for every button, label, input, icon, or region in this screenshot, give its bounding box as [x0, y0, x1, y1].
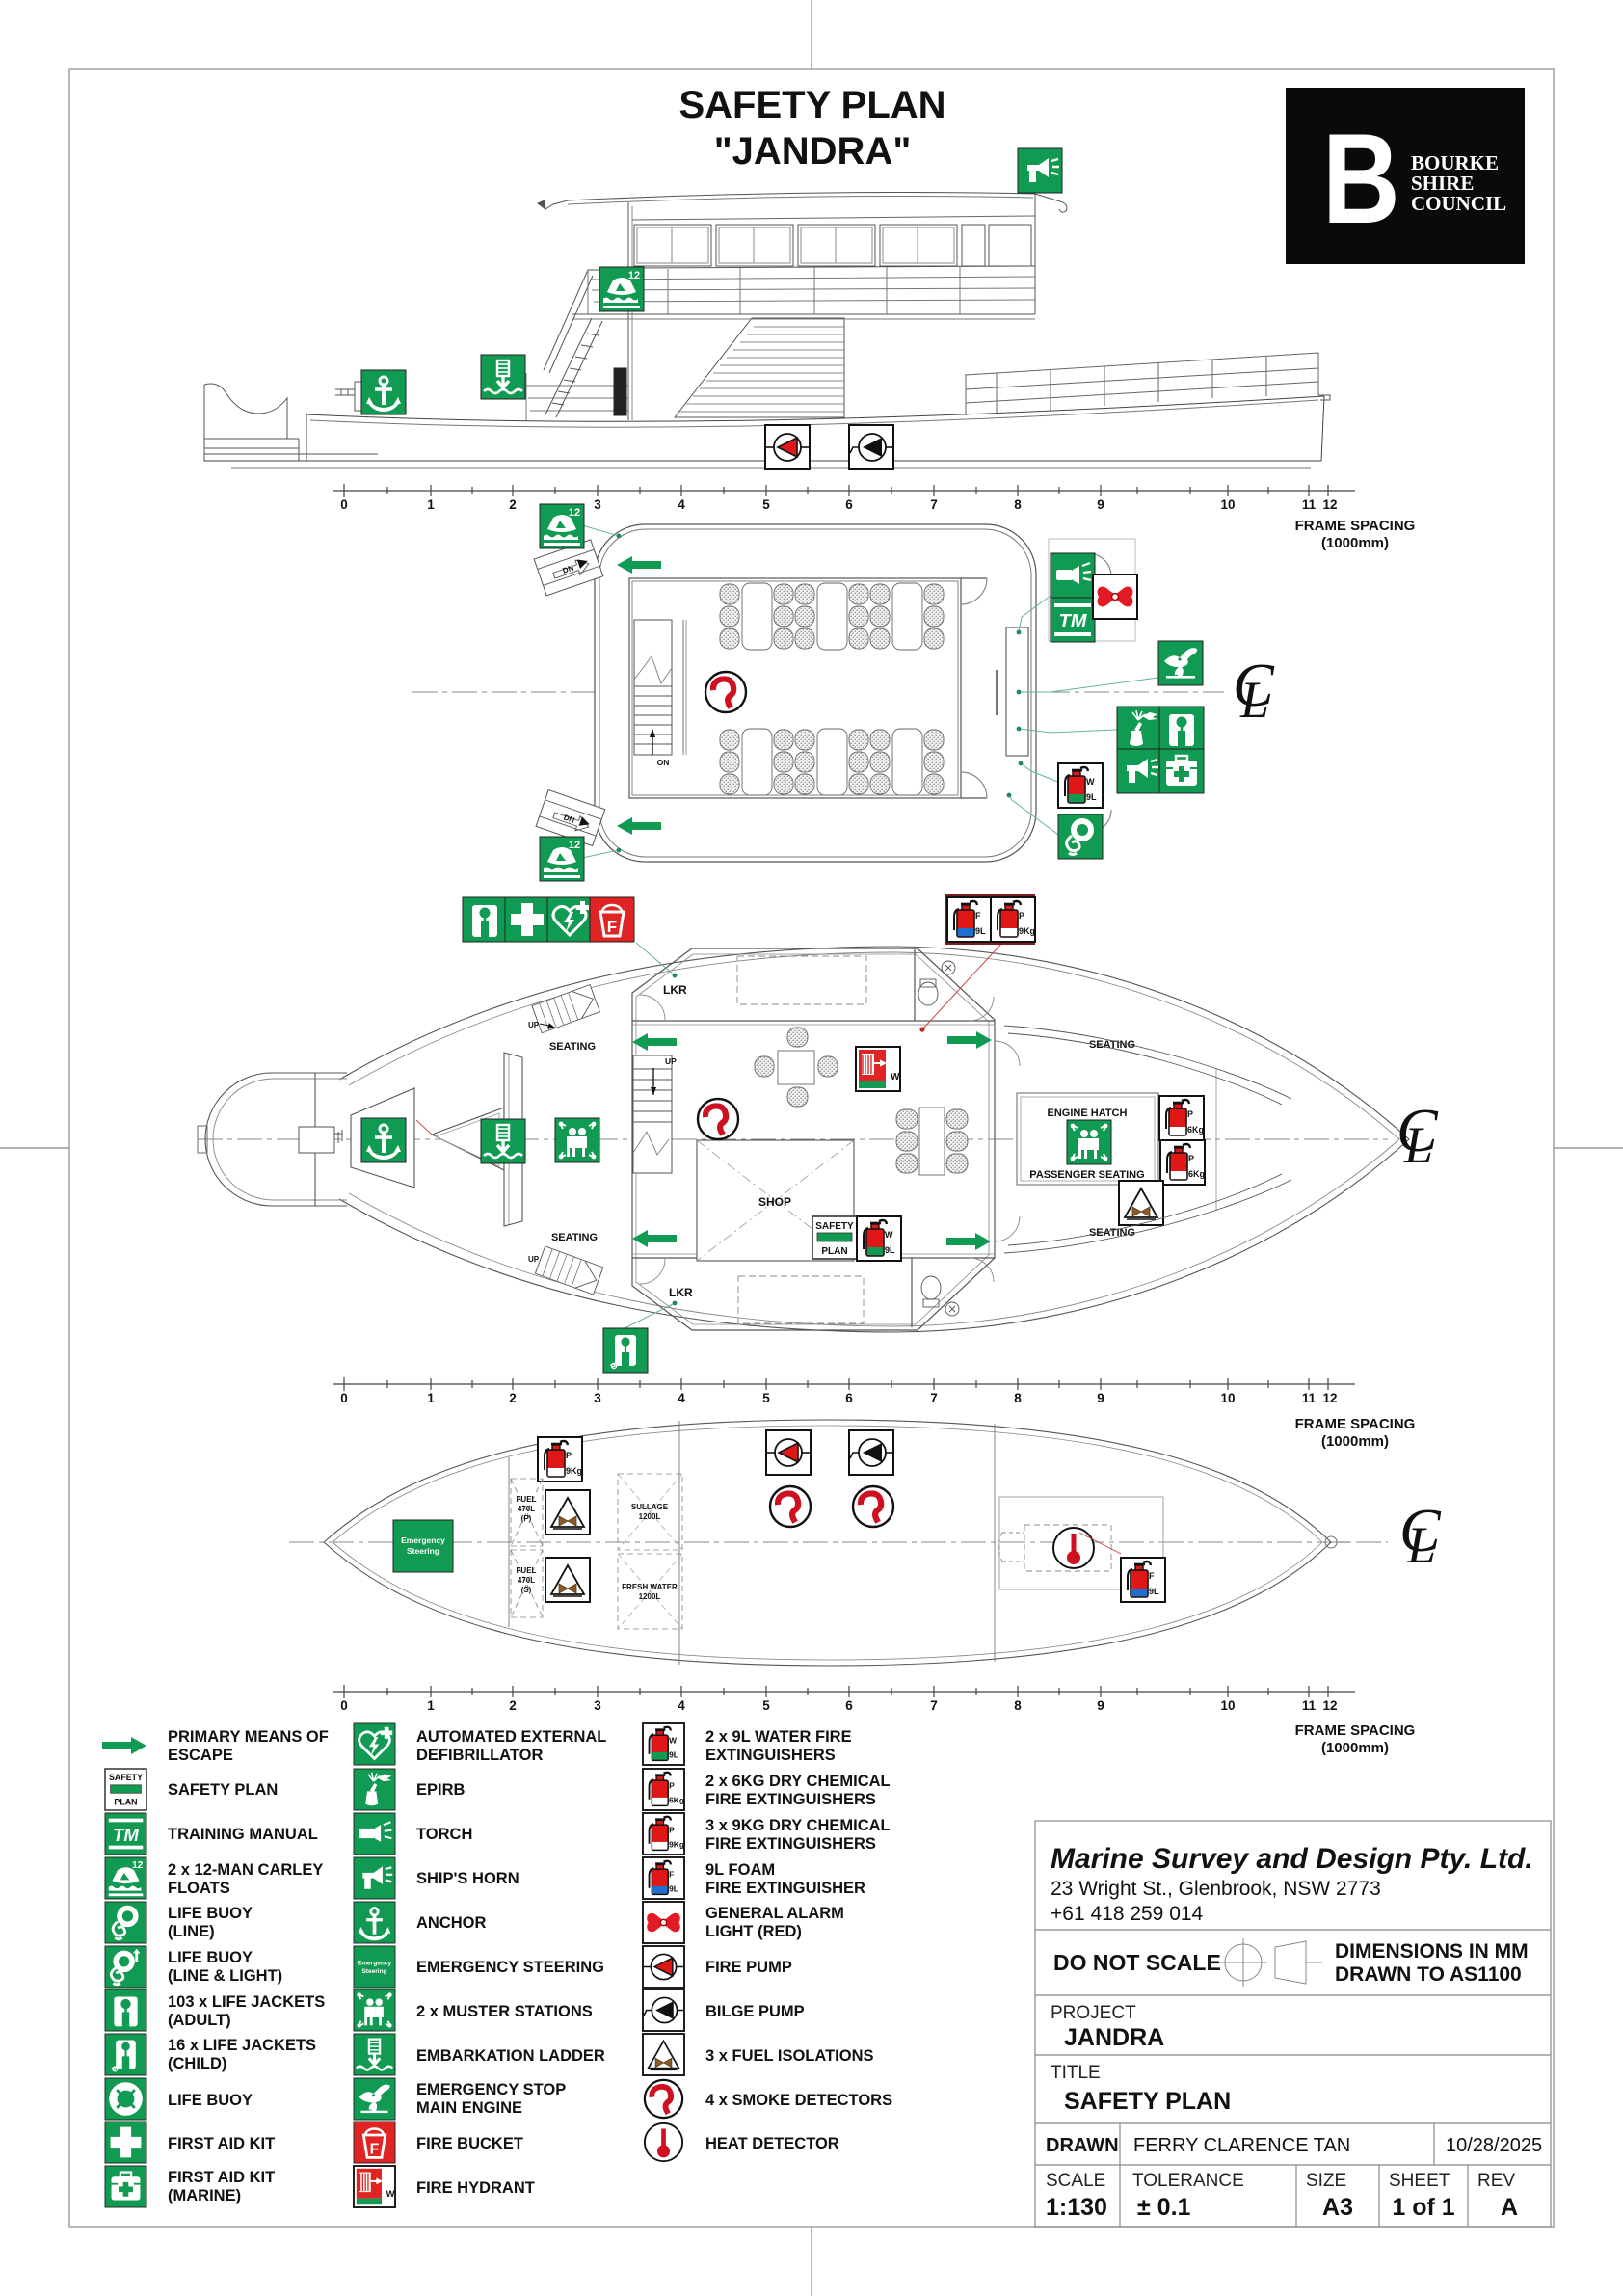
svg-text:FRAME SPACING: FRAME SPACING: [1295, 1722, 1416, 1739]
svg-text:PLAN: PLAN: [821, 1246, 847, 1257]
svg-text:0: 0: [340, 1391, 348, 1405]
svg-text:103 x LIFE JACKETS: 103 x LIFE JACKETS: [168, 1993, 325, 2011]
svg-text:2 x 9L WATER FIRE: 2 x 9L WATER FIRE: [705, 1728, 852, 1746]
svg-text:3: 3: [594, 497, 601, 512]
svg-text:FIRE EXTINGUISHER: FIRE EXTINGUISHER: [705, 1880, 865, 1897]
svg-text:Emergency: Emergency: [401, 1535, 445, 1545]
svg-text:FRESH WATER: FRESH WATER: [622, 1583, 678, 1591]
svg-text:ANCHOR: ANCHOR: [416, 1914, 486, 1932]
svg-text:FIRE EXTINGUISHERS: FIRE EXTINGUISHERS: [705, 1791, 876, 1808]
svg-text:10: 10: [1220, 1391, 1235, 1405]
svg-text:SAFETY: SAFETY: [815, 1221, 854, 1232]
svg-text:23 Wright St., Glenbrook, NSW: 23 Wright St., Glenbrook, NSW 2773: [1051, 1878, 1381, 1900]
svg-text:FIRST AID KIT: FIRST AID KIT: [168, 2169, 275, 2186]
svg-text:1: 1: [427, 1698, 435, 1713]
svg-text:9L FOAM: 9L FOAM: [705, 1861, 775, 1879]
svg-text:6: 6: [845, 497, 853, 512]
svg-text:L: L: [1239, 671, 1269, 729]
svg-text:3 x FUEL ISOLATIONS: 3 x FUEL ISOLATIONS: [705, 2047, 874, 2065]
svg-text:2: 2: [509, 1698, 517, 1713]
svg-text:SEATING: SEATING: [551, 1232, 598, 1243]
svg-text:(CHILD): (CHILD): [168, 2055, 226, 2072]
svg-text:(P): (P): [521, 1514, 532, 1523]
svg-text:FRAME SPACING: FRAME SPACING: [1295, 1416, 1416, 1432]
svg-text:ON: ON: [657, 758, 670, 767]
svg-text:FIRE PUMP: FIRE PUMP: [705, 1959, 792, 1976]
svg-text:9: 9: [1097, 1698, 1104, 1713]
svg-text:SIZE: SIZE: [1306, 2171, 1346, 2191]
svg-text:EXTINGUISHERS: EXTINGUISHERS: [705, 1747, 836, 1764]
svg-text:(S): (S): [521, 1586, 532, 1594]
svg-text:EMBARKATION LADDER: EMBARKATION LADDER: [416, 2047, 605, 2065]
svg-text:SHEET: SHEET: [1389, 2171, 1450, 2191]
svg-text:8: 8: [1014, 497, 1022, 512]
svg-text:(1000mm): (1000mm): [1321, 535, 1389, 551]
svg-text:DO NOT SCALE: DO NOT SCALE: [1053, 1950, 1221, 1975]
svg-text:470L: 470L: [518, 1505, 535, 1513]
svg-text:± 0.1: ± 0.1: [1137, 2194, 1191, 2221]
svg-text:DRAWN TO AS1100: DRAWN TO AS1100: [1335, 1963, 1522, 1986]
svg-text:3: 3: [594, 1391, 601, 1405]
svg-text:LKR: LKR: [669, 1286, 693, 1299]
svg-text:1: 1: [427, 1391, 435, 1405]
svg-text:12: 12: [1322, 1698, 1337, 1713]
svg-text:2: 2: [509, 1391, 517, 1405]
svg-text:A: A: [1501, 2194, 1518, 2221]
svg-text:SHOP: SHOP: [758, 1195, 791, 1209]
svg-text:(ADULT): (ADULT): [168, 2012, 231, 2029]
svg-text:10: 10: [1220, 497, 1235, 512]
svg-text:TITLE: TITLE: [1051, 2063, 1101, 2083]
svg-text:FUEL: FUEL: [517, 1566, 537, 1575]
svg-text:L: L: [1403, 1116, 1433, 1174]
svg-text:11: 11: [1302, 1391, 1317, 1405]
svg-text:GENERAL ALARM: GENERAL ALARM: [705, 1905, 844, 1922]
svg-text:5: 5: [762, 1698, 770, 1713]
svg-text:1200L: 1200L: [639, 1512, 661, 1521]
svg-text:HEAT DETECTOR: HEAT DETECTOR: [705, 2135, 839, 2152]
svg-text:4 x SMOKE DETECTORS: 4 x SMOKE DETECTORS: [705, 2092, 892, 2109]
svg-text:SAFETY PLAN: SAFETY PLAN: [678, 84, 945, 126]
svg-text:UP: UP: [528, 1255, 540, 1264]
svg-text:MAIN ENGINE: MAIN ENGINE: [416, 2099, 522, 2117]
svg-text:EPIRB: EPIRB: [416, 1781, 466, 1799]
svg-text:0: 0: [340, 1698, 348, 1713]
svg-text:8: 8: [1014, 1698, 1022, 1713]
svg-text:SAFETY PLAN: SAFETY PLAN: [168, 1781, 278, 1799]
svg-text:6: 6: [845, 1698, 853, 1713]
svg-text:LIFE BUOY: LIFE BUOY: [168, 1949, 253, 1966]
svg-text:10/28/2025: 10/28/2025: [1446, 2135, 1542, 2156]
svg-text:6: 6: [845, 1391, 853, 1405]
svg-text:EMERGENCY STEERING: EMERGENCY STEERING: [416, 1959, 604, 1976]
svg-text:FRAME SPACING: FRAME SPACING: [1295, 518, 1416, 534]
svg-text:3: 3: [594, 1698, 601, 1713]
svg-text:4: 4: [678, 1698, 685, 1713]
svg-text:TRAINING MANUAL: TRAINING MANUAL: [168, 1826, 318, 1843]
svg-text:2: 2: [509, 497, 517, 512]
svg-text:12: 12: [1322, 497, 1337, 512]
svg-text:+61 418 259 014: +61 418 259 014: [1051, 1903, 1204, 1925]
svg-text:(1000mm): (1000mm): [1321, 1740, 1389, 1756]
svg-text:"JANDRA": "JANDRA": [714, 130, 912, 173]
svg-text:LKR: LKR: [663, 983, 687, 997]
svg-text:FIRST AID KIT: FIRST AID KIT: [168, 2135, 275, 2152]
svg-text:SCALE: SCALE: [1046, 2171, 1105, 2191]
svg-text:DRAWN: DRAWN: [1046, 2135, 1119, 2156]
svg-text:9: 9: [1097, 497, 1104, 512]
svg-text:LIFE BUOY: LIFE BUOY: [168, 1905, 253, 1922]
svg-text:FIRE BUCKET: FIRE BUCKET: [416, 2135, 523, 2152]
svg-text:FIRE EXTINGUISHERS: FIRE EXTINGUISHERS: [705, 1835, 876, 1853]
svg-text:8: 8: [1014, 1391, 1022, 1405]
svg-text:4: 4: [678, 497, 685, 512]
svg-text:A3: A3: [1322, 2194, 1353, 2221]
svg-text:470L: 470L: [518, 1576, 535, 1585]
svg-text:5: 5: [762, 497, 770, 512]
svg-text:FERRY CLARENCE TAN: FERRY CLARENCE TAN: [1133, 2135, 1350, 2156]
svg-text:1 of 1: 1 of 1: [1392, 2194, 1454, 2221]
svg-text:BILGE PUMP: BILGE PUMP: [705, 2003, 805, 2020]
svg-text:16 x LIFE JACKETS: 16 x LIFE JACKETS: [168, 2037, 316, 2054]
svg-text:9: 9: [1097, 1391, 1104, 1405]
svg-text:PASSENGER SEATING: PASSENGER SEATING: [1029, 1169, 1144, 1181]
svg-text:Marine Survey and Design Pty.: Marine Survey and Design Pty. Ltd.: [1051, 1843, 1533, 1875]
svg-text:PRIMARY MEANS OF: PRIMARY MEANS OF: [168, 1728, 329, 1746]
svg-text:SEATING: SEATING: [1089, 1227, 1135, 1239]
svg-text:COUNCIL: COUNCIL: [1411, 192, 1506, 215]
svg-text:LIGHT (RED): LIGHT (RED): [705, 1923, 802, 1940]
svg-text:1: 1: [427, 497, 435, 512]
svg-text:12: 12: [1322, 1391, 1337, 1405]
svg-text:10: 10: [1220, 1698, 1235, 1713]
svg-text:L: L: [1406, 1516, 1436, 1574]
svg-text:PROJECT: PROJECT: [1051, 2003, 1136, 2023]
svg-text:2 x MUSTER STATIONS: 2 x MUSTER STATIONS: [416, 2003, 593, 2020]
svg-text:2 x 6KG DRY CHEMICAL: 2 x 6KG DRY CHEMICAL: [705, 1773, 891, 1790]
svg-text:SEATING: SEATING: [549, 1041, 596, 1053]
svg-text:7: 7: [930, 1698, 938, 1713]
svg-text:Steering: Steering: [407, 1546, 439, 1556]
svg-text:EMERGENCY STOP: EMERGENCY STOP: [416, 2081, 566, 2098]
svg-text:SHIP'S HORN: SHIP'S HORN: [416, 1870, 519, 1887]
svg-text:5: 5: [762, 1391, 770, 1405]
svg-text:AUTOMATED EXTERNAL: AUTOMATED EXTERNAL: [416, 1728, 606, 1746]
svg-text:11: 11: [1302, 1698, 1317, 1713]
svg-text:DEFIBRILLATOR: DEFIBRILLATOR: [416, 1747, 543, 1764]
svg-text:(LINE): (LINE): [168, 1923, 215, 1940]
svg-text:FLOATS: FLOATS: [168, 1880, 230, 1897]
svg-text:(LINE & LIGHT): (LINE & LIGHT): [168, 1967, 282, 1985]
svg-text:2 x 12-MAN CARLEY: 2 x 12-MAN CARLEY: [168, 1861, 323, 1879]
svg-text:DIMENSIONS IN MM: DIMENSIONS IN MM: [1335, 1940, 1529, 1962]
svg-text:UP: UP: [665, 1056, 677, 1066]
svg-text:ESCAPE: ESCAPE: [168, 1747, 233, 1764]
svg-text:7: 7: [930, 1391, 938, 1405]
svg-text:SULLAGE: SULLAGE: [631, 1503, 669, 1511]
svg-text:11: 11: [1302, 497, 1317, 512]
svg-text:1:130: 1:130: [1046, 2194, 1107, 2221]
svg-text:1200L: 1200L: [639, 1592, 661, 1601]
svg-text:LIFE BUOY: LIFE BUOY: [168, 2092, 253, 2109]
svg-text:ENGINE HATCH: ENGINE HATCH: [1048, 1108, 1128, 1119]
svg-text:4: 4: [678, 1391, 685, 1405]
svg-text:SAFETY PLAN: SAFETY PLAN: [1064, 2088, 1231, 2115]
svg-text:0: 0: [340, 497, 348, 512]
svg-text:(1000mm): (1000mm): [1321, 1433, 1389, 1450]
svg-text:3 x 9KG DRY CHEMICAL: 3 x 9KG DRY CHEMICAL: [705, 1817, 891, 1834]
svg-text:FIRE HYDRANT: FIRE HYDRANT: [416, 2179, 535, 2197]
svg-text:REV: REV: [1477, 2171, 1515, 2191]
svg-text:JANDRA: JANDRA: [1064, 2024, 1164, 2051]
svg-text:7: 7: [930, 497, 938, 512]
svg-text:UP: UP: [528, 1021, 540, 1029]
svg-text:(MARINE): (MARINE): [168, 2187, 241, 2204]
svg-text:B: B: [1322, 108, 1400, 251]
svg-text:TOLERANCE: TOLERANCE: [1132, 2171, 1244, 2191]
svg-text:TORCH: TORCH: [416, 1826, 472, 1843]
svg-text:FUEL: FUEL: [517, 1495, 537, 1504]
